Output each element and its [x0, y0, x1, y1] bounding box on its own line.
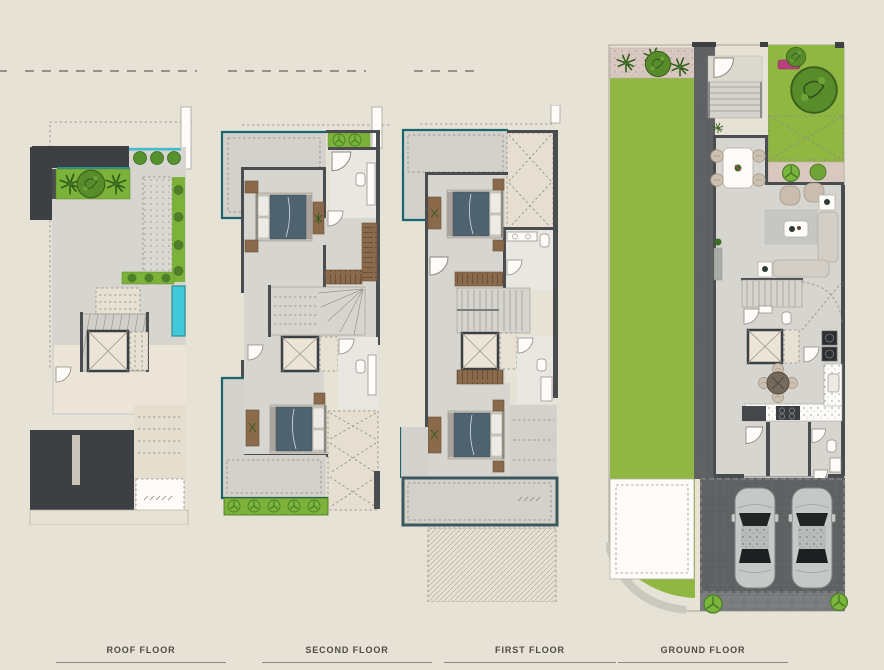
entry-planter — [610, 48, 695, 78]
chair-icon — [711, 174, 723, 186]
entry — [708, 56, 762, 133]
garden-planter — [768, 162, 844, 184]
lower-roof-strip — [30, 510, 188, 525]
stove-icon — [776, 406, 800, 420]
bed-icon — [256, 193, 313, 241]
tree-icon — [174, 266, 184, 276]
nightstand-icon — [493, 461, 504, 472]
tree-icon — [786, 47, 805, 66]
tv-console-icon — [714, 248, 722, 280]
toilet-icon — [537, 359, 546, 371]
level-datum-line — [25, 70, 197, 72]
console-icon — [313, 202, 324, 234]
pergola — [428, 528, 556, 602]
sink-icon — [759, 306, 772, 313]
pool-icon — [172, 286, 185, 336]
nightstand-icon — [245, 181, 258, 193]
stairs-icon — [457, 288, 530, 333]
stair-landing — [96, 288, 140, 314]
level-datum-line — [0, 70, 7, 72]
vanity-icon — [541, 377, 552, 401]
elevator-icon — [462, 333, 498, 369]
tree-icon — [791, 67, 837, 113]
terrace-planter — [224, 498, 328, 515]
bush-icon — [831, 594, 848, 611]
level-datum-line — [228, 70, 366, 72]
water-strip — [129, 148, 181, 151]
chair-icon — [753, 174, 765, 186]
coffee-table-icon — [784, 221, 808, 237]
nightstand-icon — [314, 393, 325, 404]
elevator-icon — [88, 331, 128, 371]
open-roof-area — [134, 405, 186, 517]
bush-icon — [810, 164, 826, 180]
tree-icon — [174, 240, 184, 250]
hatched-opening — [328, 411, 380, 510]
dryer-icon — [822, 347, 837, 361]
second-floor-plan — [218, 105, 398, 522]
label-text: ROOF FLOOR — [107, 645, 176, 655]
elevator-icon — [748, 330, 782, 363]
roof-trees — [134, 152, 181, 165]
shaft-slot — [551, 105, 560, 123]
vanity-icon — [368, 355, 376, 395]
sofa-icon — [818, 212, 838, 262]
side-planter — [172, 177, 185, 282]
cabinet-icon — [742, 406, 766, 421]
bush-icon — [333, 134, 345, 146]
wardrobe — [457, 370, 503, 384]
plant-icon — [715, 239, 722, 246]
toilet-icon — [356, 360, 365, 373]
washer-icon — [822, 331, 837, 345]
label-ground-floor: GROUND FLOOR — [618, 640, 788, 663]
bathroom-2 — [338, 337, 378, 409]
tree-icon — [174, 185, 184, 195]
toilet-icon — [782, 312, 791, 324]
bush-icon — [349, 134, 361, 146]
low-planter — [122, 272, 174, 284]
toilet-icon — [540, 234, 549, 247]
tree-icon — [77, 170, 105, 198]
duct-shaft — [784, 330, 799, 363]
roof-planter — [52, 169, 130, 199]
pergola — [143, 177, 172, 282]
label-second-floor: SECOND FLOOR — [262, 640, 432, 663]
wardrobe — [455, 272, 503, 286]
duct-shaft — [130, 332, 148, 370]
storage-room — [610, 479, 694, 579]
label-text: FIRST FLOOR — [495, 645, 565, 655]
car-icon — [789, 488, 836, 588]
bed-icon — [448, 411, 505, 459]
bush-icon — [704, 595, 722, 613]
bed-icon — [447, 190, 504, 238]
tree-icon — [134, 152, 147, 165]
chair-icon — [753, 150, 765, 162]
dresser-icon — [428, 417, 441, 453]
nightstand-icon — [245, 240, 258, 252]
roof-mass-lower — [30, 430, 134, 510]
tree-icon — [151, 152, 164, 165]
nightstand-icon — [493, 240, 504, 251]
dresser-icon — [428, 197, 441, 229]
armchair-icon — [780, 186, 800, 205]
vanity-icon — [367, 163, 375, 205]
bed-icon — [270, 405, 327, 453]
label-text: GROUND FLOOR — [661, 645, 746, 655]
toilet-icon — [827, 440, 836, 452]
stairs-icon — [268, 285, 365, 337]
nightstand-icon — [493, 179, 504, 190]
first-floor-plan — [400, 105, 562, 607]
roof-floor-plan — [28, 105, 195, 530]
sink-icon — [828, 374, 839, 392]
label-first-floor: FIRST FLOOR — [444, 640, 616, 663]
dresser-icon — [246, 410, 259, 446]
vanity-icon — [830, 458, 841, 472]
ground-floor-plan — [606, 42, 848, 619]
level-datum-line — [414, 70, 480, 72]
back-garden — [768, 45, 844, 185]
sofa-icon — [773, 260, 829, 277]
nightstand-icon — [493, 400, 504, 411]
label-text: SECOND FLOOR — [305, 645, 388, 655]
plan-sheet: ROOF FLOOR SECOND FLOOR FIRST FLOOR GROU… — [0, 0, 884, 670]
elevator-icon — [282, 337, 318, 371]
chair-icon — [711, 150, 723, 162]
bush-icon — [783, 165, 800, 182]
hatched-opening — [507, 133, 553, 230]
entry-steps — [708, 82, 762, 118]
label-roof-floor: ROOF FLOOR — [56, 640, 226, 663]
tree-icon — [174, 212, 184, 222]
driveway — [700, 478, 847, 613]
duct-shaft — [320, 337, 338, 371]
bathroom-4 — [517, 336, 553, 403]
duct-shaft — [500, 333, 517, 369]
car-icon — [732, 488, 779, 588]
tree-icon — [168, 152, 181, 165]
vanity-icon — [507, 232, 537, 241]
toilet-icon — [356, 173, 365, 186]
tree-icon — [645, 51, 670, 76]
rear-planter — [328, 133, 370, 148]
